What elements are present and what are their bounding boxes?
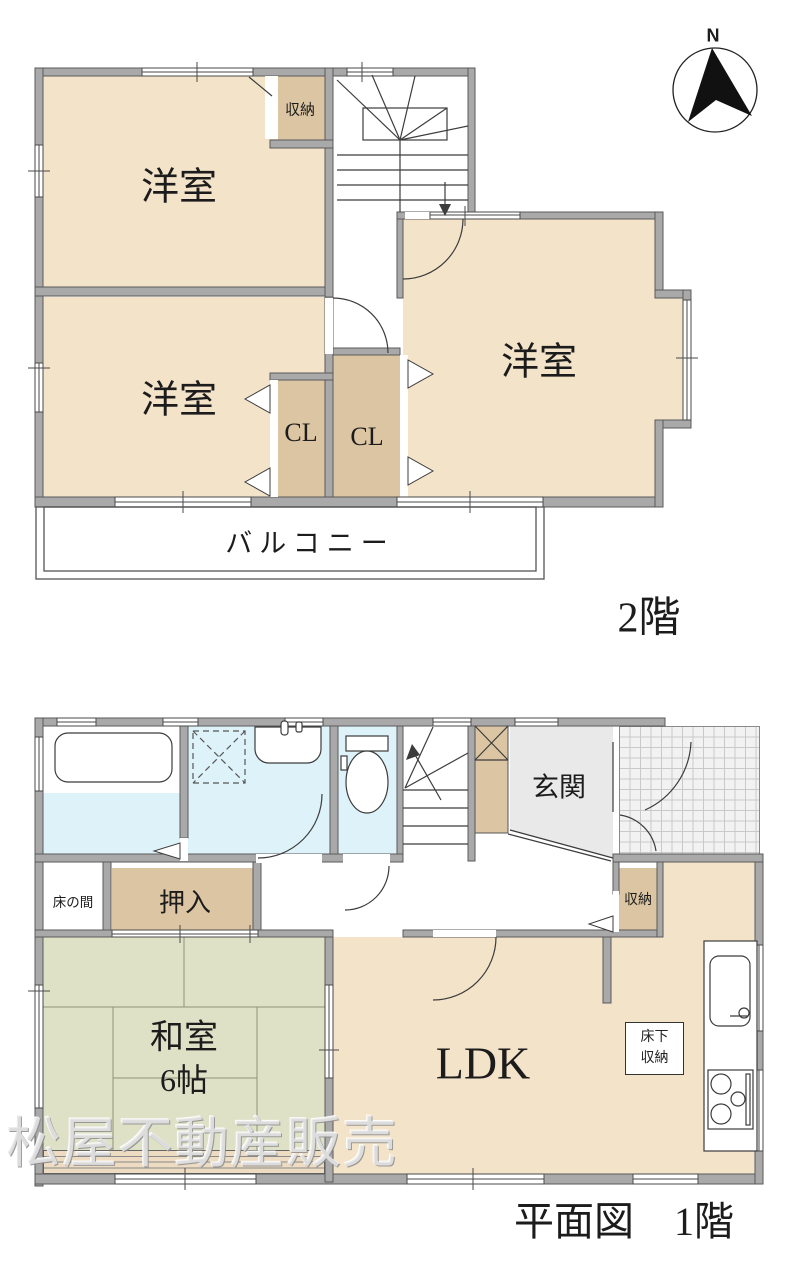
room-label-washitsu-size: 6帖 <box>160 1055 208 1101</box>
floor1-title: 平面図 1階 <box>514 1189 734 1247</box>
room-label-oshiire: 押入 <box>159 883 211 920</box>
underfloor-storage-label-line1: 床下 <box>641 1028 669 1048</box>
underfloor-storage-box: 床下 収納 <box>625 1022 684 1075</box>
floor2-title: 2階 <box>617 584 680 645</box>
room-label-balcony: バルコニー <box>225 522 394 561</box>
room-label-closet-right: CL <box>350 422 383 452</box>
room-label-yoshitsu-nw: 洋室 <box>141 156 217 211</box>
room-label-yoshitsu-e: 洋室 <box>501 331 577 386</box>
room-label-storage-1f: 収納 <box>624 889 652 909</box>
underfloor-storage-label-line2: 収納 <box>641 1049 669 1069</box>
bathtub-icon <box>55 733 172 782</box>
room-label-tokonoma: 床の間 <box>53 891 94 911</box>
compass-north-label: N <box>707 26 720 47</box>
washbasin-icon <box>255 721 321 763</box>
room-label-closet-left: CL <box>284 418 317 448</box>
room-label-ldk: LDK <box>436 1037 531 1090</box>
room-label-genkan: 玄関 <box>532 766 586 805</box>
compass-icon <box>673 48 757 132</box>
room-label-yoshitsu-sw: 洋室 <box>141 369 217 424</box>
watermark-text: 松屋不動産販売 <box>6 1098 398 1178</box>
floorplan-page: N 洋室 収納 洋室 CL CL 洋室 バルコニー 2階 玄関 収納 押入 床の… <box>0 0 798 1280</box>
room-label-storage-2f: 収納 <box>285 99 315 120</box>
stairs-2f-icon <box>337 75 468 216</box>
stairs-1f-icon <box>403 727 468 844</box>
room-label-washitsu: 和室 <box>150 1010 218 1059</box>
kitchen-icon <box>704 941 757 1151</box>
